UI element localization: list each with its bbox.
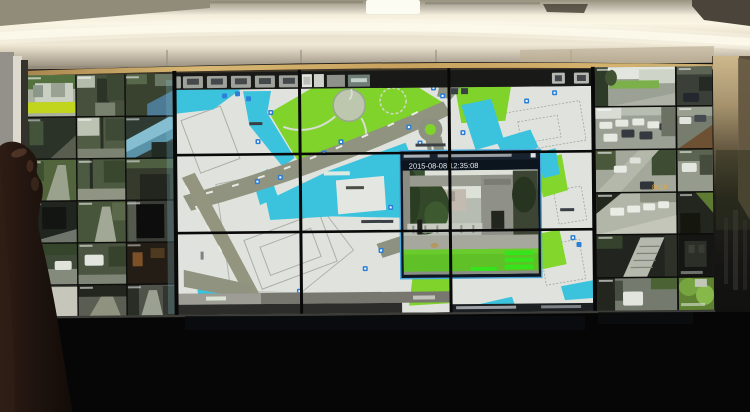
svg-text:8c18: 8c18 bbox=[652, 184, 667, 191]
svg-text:2015-08-08 12:35:08: 2015-08-08 12:35:08 bbox=[409, 161, 479, 171]
